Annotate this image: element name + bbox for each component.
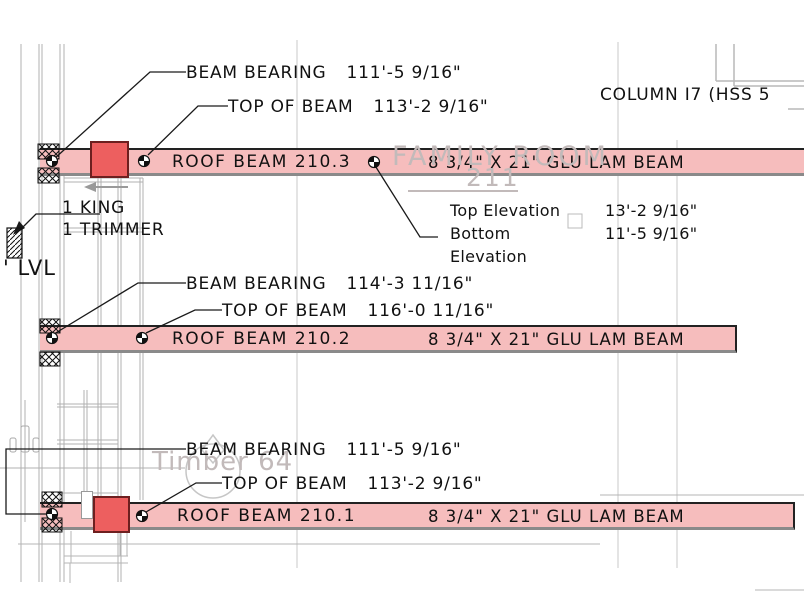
cad-drawing-canvas: Timber 64 FAMILY ROOM 211 ROOF BEAM 210.… (0, 0, 804, 613)
top-elevation-value: 13'-2 9/16" (605, 201, 697, 220)
gray-section-arrow-icon (84, 182, 128, 192)
top-of-beam-2-label[interactable]: TOP OF BEAM 116'-0 11/16" (222, 301, 494, 321)
beam-bearing-3-label[interactable]: BEAM BEARING 111'-5 9/16" (186, 440, 462, 460)
label-text: BEAM BEARING (186, 63, 326, 83)
label-text: TOP OF BEAM (222, 474, 347, 494)
top-elevation-label[interactable]: Top Elevation (450, 201, 560, 220)
bottom-elevation-label-2: Elevation (450, 247, 527, 266)
label-text: BEAM BEARING (186, 274, 326, 294)
king-trimmer-label[interactable]: 1 KING 1 TRIMMER (62, 197, 165, 241)
bottom-elevation-label[interactable]: Bottom (450, 224, 511, 243)
label-value: 113'-2 9/16" (367, 474, 482, 494)
king-line: 1 KING (62, 197, 165, 219)
top-of-beam-3-label[interactable]: TOP OF BEAM 113'-2 9/16" (222, 474, 483, 494)
beam-bearing-2-label[interactable]: BEAM BEARING 114'-3 11/16" (186, 274, 473, 294)
bottom-elevation-value: 11'-5 9/16" (605, 224, 697, 243)
top-of-beam-1-label[interactable]: TOP OF BEAM 113'-2 9/16" (228, 97, 489, 117)
label-text: BEAM BEARING (186, 440, 326, 460)
label-value: 111'-5 9/16" (346, 63, 461, 83)
column-label[interactable]: COLUMN I7 (HSS 5 (600, 85, 804, 105)
label-text: TOP OF BEAM (222, 301, 347, 321)
beam-bearing-1-label[interactable]: BEAM BEARING 111'-5 9/16" (186, 63, 462, 83)
label-value: 113'-2 9/16" (373, 97, 488, 117)
label-text: COLUMN I7 (HSS 5 (600, 85, 770, 105)
lvl-hatch[interactable] (7, 228, 22, 258)
label-value: 114'-3 11/16" (346, 274, 473, 294)
label-value: 116'-0 11/16" (367, 301, 494, 321)
label-value: 111'-5 9/16" (346, 440, 461, 460)
trimmer-line: 1 TRIMMER (62, 219, 165, 241)
label-text: TOP OF BEAM (228, 97, 353, 117)
lvl-label[interactable]: ' LVL (3, 256, 56, 280)
